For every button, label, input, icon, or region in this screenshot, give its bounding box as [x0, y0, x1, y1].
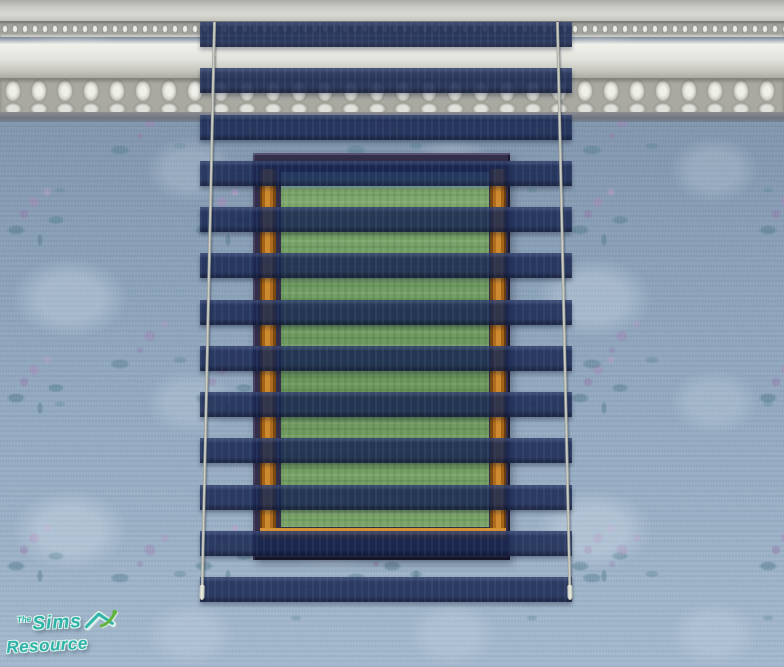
blind-slat — [200, 531, 572, 556]
watermark-the: The — [17, 616, 32, 625]
blind-slat — [200, 22, 572, 47]
blind-slat — [200, 438, 572, 463]
blind-slat — [200, 300, 572, 325]
blind-slat — [200, 68, 572, 93]
blind-cord-tip-right — [567, 585, 572, 599]
tsr-watermark: The Sims Resource — [5, 608, 158, 667]
blind-slat — [200, 346, 572, 371]
tsr-house-icon — [83, 608, 118, 634]
blind-slat — [200, 577, 572, 602]
molding-top-fascia — [0, 0, 784, 21]
watermark-sims: Sims — [32, 612, 82, 634]
blind-slat — [200, 253, 572, 278]
blind-slat — [200, 115, 572, 140]
venetian-blind — [200, 22, 572, 602]
blind-cord-tip-left — [199, 585, 204, 599]
blind-slat — [200, 485, 572, 510]
sims-screenshot-stage: The Sims Resource — [0, 0, 784, 667]
blind-slat — [200, 207, 572, 232]
blind-slat — [200, 392, 572, 417]
blind-slat — [200, 161, 572, 186]
